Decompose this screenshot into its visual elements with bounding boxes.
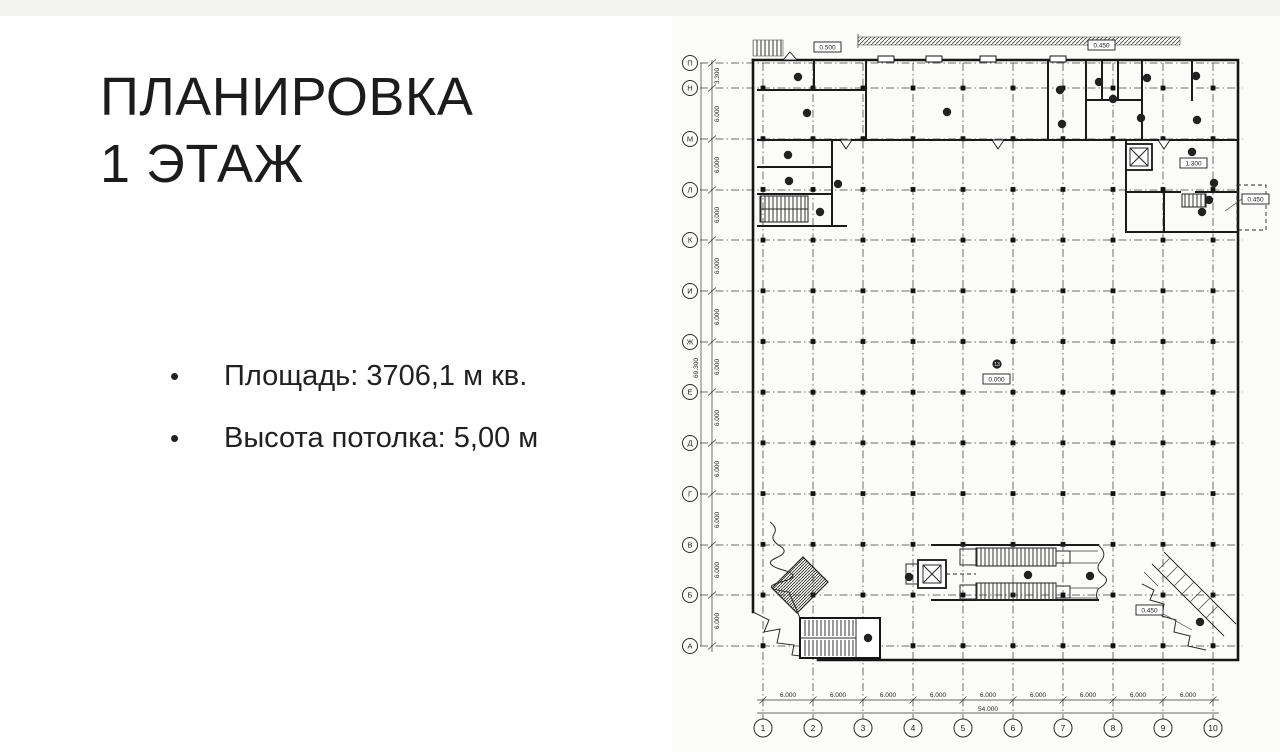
svg-text:Л: Л	[688, 186, 693, 195]
svg-text:6.000: 6.000	[714, 105, 721, 122]
svg-text:6.000: 6.000	[1030, 692, 1047, 699]
bullet-dot: •	[170, 356, 188, 396]
title-line-2: 1 ЭТАЖ	[100, 131, 473, 198]
svg-text:6.000: 6.000	[1180, 692, 1197, 699]
svg-text:69.300: 69.300	[693, 358, 700, 378]
floor-plan-drawing: 13 3.300 6.000 6.000 6.000 6.000 6.000 6…	[672, 16, 1280, 752]
svg-text:6.000: 6.000	[1130, 692, 1147, 699]
top-strip	[0, 0, 1280, 16]
svg-text:М: М	[687, 135, 693, 144]
svg-text:6.000: 6.000	[930, 692, 947, 699]
svg-text:0.000: 0.000	[988, 377, 1005, 384]
svg-text:В: В	[687, 541, 692, 550]
svg-text:0.450: 0.450	[1093, 43, 1110, 50]
elevator-top-right	[1126, 144, 1152, 170]
title-line-1: ПЛАНИРОВКА	[100, 64, 473, 131]
svg-text:7: 7	[1061, 723, 1066, 733]
svg-text:П: П	[687, 59, 692, 68]
page-title: ПЛАНИРОВКА 1 ЭТАЖ	[100, 64, 473, 198]
svg-text:6.000: 6.000	[980, 692, 997, 699]
svg-text:0.500: 0.500	[819, 45, 836, 52]
svg-text:6.000: 6.000	[714, 308, 721, 325]
svg-text:8: 8	[1111, 723, 1116, 733]
svg-text:9: 9	[1161, 723, 1166, 733]
svg-text:6.000: 6.000	[714, 612, 721, 629]
stair-right-mid	[1182, 194, 1206, 207]
svg-text:0.450: 0.450	[1247, 197, 1264, 204]
bullet-area-text: Площадь: 3706,1 м кв.	[224, 356, 527, 396]
bullet-area: • Площадь: 3706,1 м кв.	[170, 356, 527, 396]
bullet-dot: •	[170, 418, 188, 458]
svg-text:6.000: 6.000	[714, 511, 721, 528]
stair-top-left	[760, 196, 808, 222]
svg-text:К: К	[688, 236, 693, 245]
svg-text:Д: Д	[687, 439, 692, 448]
svg-text:Б: Б	[688, 591, 693, 600]
svg-text:6.000: 6.000	[830, 692, 847, 699]
svg-text:6: 6	[1011, 723, 1016, 733]
svg-text:13: 13	[994, 362, 1000, 368]
svg-text:6.000: 6.000	[714, 561, 721, 578]
bullet-ceiling-text: Высота потолка: 5,00 м	[224, 418, 538, 458]
svg-text:Ж: Ж	[687, 338, 694, 347]
svg-text:1: 1	[761, 723, 766, 733]
svg-text:4: 4	[911, 723, 916, 733]
svg-text:54.000: 54.000	[978, 706, 998, 713]
svg-text:6.000: 6.000	[714, 257, 721, 274]
svg-text:6.000: 6.000	[1080, 692, 1097, 699]
bullet-ceiling: • Высота потолка: 5,00 м	[170, 418, 538, 458]
svg-text:Н: Н	[687, 84, 692, 93]
svg-text:6.000: 6.000	[714, 409, 721, 426]
svg-text:3: 3	[861, 723, 866, 733]
svg-text:10: 10	[1208, 723, 1218, 733]
svg-text:6.000: 6.000	[714, 156, 721, 173]
svg-text:Е: Е	[687, 388, 692, 397]
svg-text:А: А	[687, 642, 692, 651]
svg-text:3.300: 3.300	[714, 67, 721, 84]
svg-text:И: И	[687, 287, 692, 296]
svg-text:6.000: 6.000	[880, 692, 897, 699]
svg-text:Г: Г	[688, 490, 692, 499]
svg-text:6.000: 6.000	[714, 206, 721, 223]
svg-text:1.300: 1.300	[1185, 161, 1202, 168]
svg-text:5: 5	[961, 723, 966, 733]
svg-text:6.000: 6.000	[714, 460, 721, 477]
svg-text:0.450: 0.450	[1141, 608, 1158, 615]
svg-text:6.000: 6.000	[714, 358, 721, 375]
svg-text:6.000: 6.000	[780, 692, 797, 699]
room-marker-center: 13	[992, 359, 1001, 368]
svg-text:2: 2	[811, 723, 816, 733]
floor-plan: 13 3.300 6.000 6.000 6.000 6.000 6.000 6…	[672, 16, 1280, 752]
dock-hatch	[753, 40, 783, 56]
slide: ПЛАНИРОВКА 1 ЭТАЖ • Площадь: 3706,1 м кв…	[0, 0, 1280, 752]
